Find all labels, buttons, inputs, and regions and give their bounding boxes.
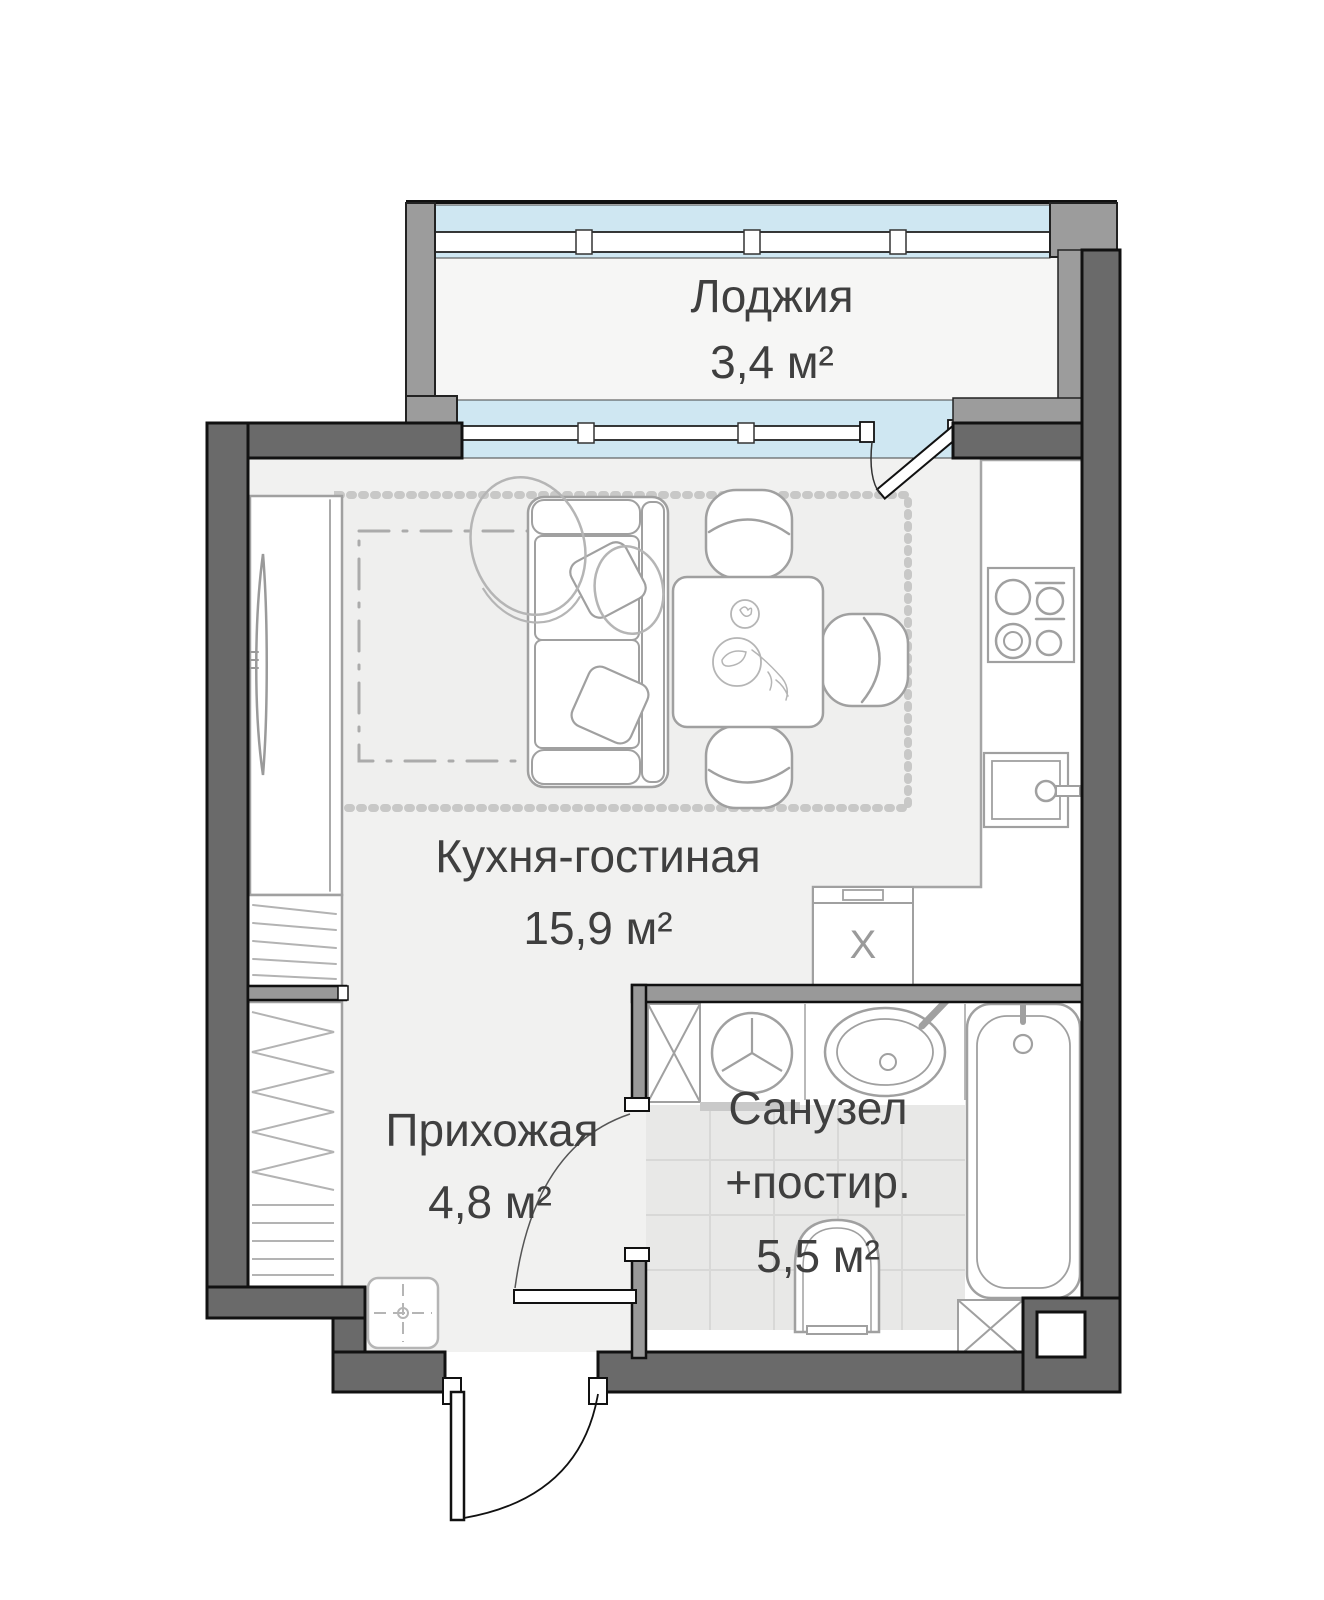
bathroom-wall-top: [632, 985, 1082, 1002]
wall-stub-left: [248, 986, 346, 1000]
bathroom-wall-left-upper: [632, 985, 646, 1110]
sofa: [528, 497, 668, 787]
bathtub: [967, 1004, 1080, 1298]
hob: [988, 568, 1074, 662]
duct-shaft: [648, 1004, 700, 1102]
bathroom-name-2: +постир.: [725, 1156, 910, 1208]
kitchen-sink: [984, 753, 1080, 827]
wardrobe-living: [248, 895, 342, 986]
sofa-armrest: [532, 500, 640, 534]
dining-table: [673, 577, 823, 727]
sofa-armrest: [532, 750, 640, 784]
window-loggia: [406, 202, 1117, 258]
kitchen-living-area: 15,9 м²: [523, 902, 672, 954]
floor-plan-page: X: [0, 0, 1324, 1600]
appliance-x-label: X: [850, 923, 877, 967]
sofa-backrest: [642, 502, 664, 782]
wardrobe-hallway: [248, 1002, 342, 1287]
loggia-name: Лоджия: [691, 270, 854, 322]
floor-plan: X: [0, 0, 1324, 1600]
wall-bottom-right: [598, 1352, 1082, 1392]
wall-right: [1082, 250, 1120, 1392]
kitchen-living-name: Кухня-гостиная: [435, 830, 760, 882]
chair-right: [822, 614, 908, 706]
bathroom-area: 5,5 м²: [756, 1230, 880, 1282]
loggia-area: 3,4 м²: [710, 336, 834, 388]
doormat: [368, 1278, 438, 1348]
duct-niche: [1037, 1312, 1085, 1357]
entry-door: [443, 1378, 607, 1520]
chair-top: [706, 490, 792, 578]
wall-stub-cap: [338, 986, 348, 1000]
wall-top-right: [953, 423, 1082, 458]
window-living: [440, 400, 953, 458]
wall-step-1: [207, 1287, 365, 1318]
outside-mask: [200, 1318, 333, 1408]
wall-left: [207, 423, 248, 1318]
hallway-area: 4,8 м²: [428, 1176, 552, 1228]
bathroom-name: Санузел: [728, 1082, 907, 1134]
duct-shaft-2: [958, 1300, 1023, 1357]
hallway-name: Прихожая: [385, 1104, 598, 1156]
wall-bottom-left: [333, 1352, 445, 1392]
chair-bottom: [706, 726, 792, 808]
appliance-x: X: [813, 887, 913, 985]
